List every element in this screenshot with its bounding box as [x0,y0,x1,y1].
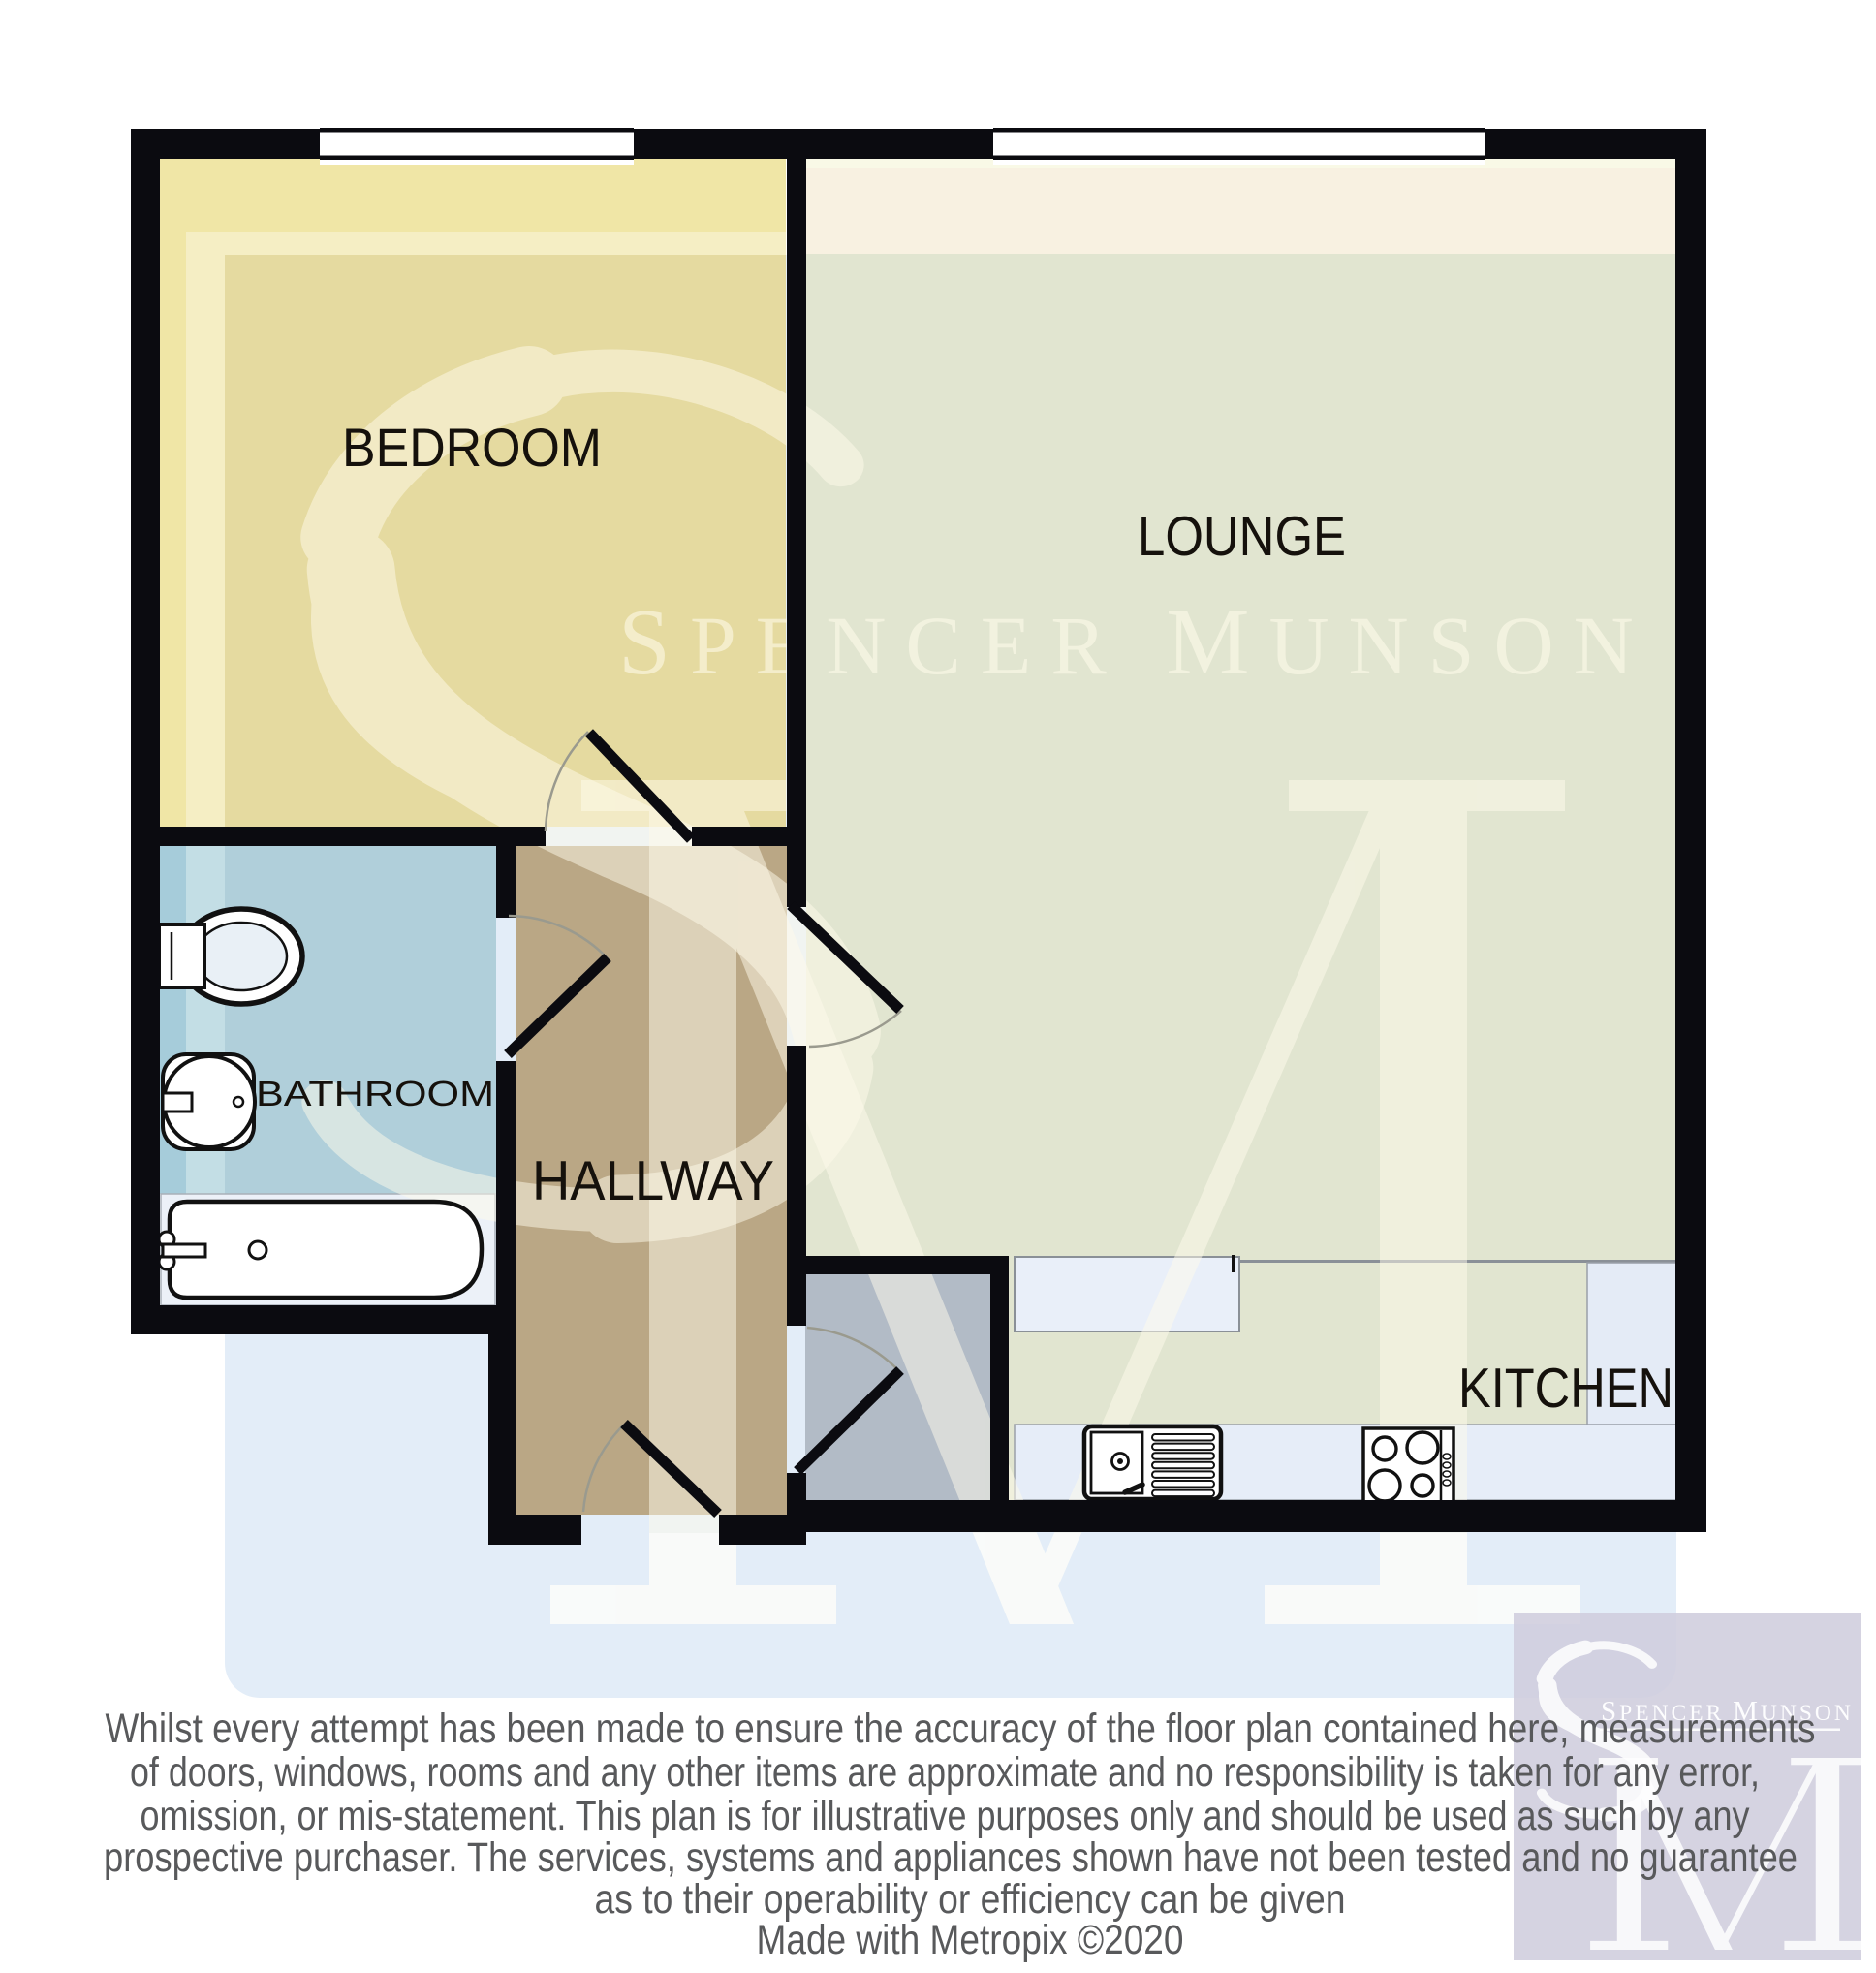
svg-text:HALLWAY: HALLWAY [532,1150,774,1212]
svg-text:prospective purchaser. The ser: prospective purchaser. The services, sys… [104,1834,1798,1881]
svg-text:BATHROOM: BATHROOM [256,1075,494,1113]
svg-text:BEDROOM: BEDROOM [342,418,602,478]
svg-text:KITCHEN: KITCHEN [1458,1358,1673,1420]
svg-text:of doors, windows, rooms and a: of doors, windows, rooms and any other i… [130,1749,1760,1796]
svg-text:Whilst every attempt has been: Whilst every attempt has been made to en… [106,1706,1816,1752]
svg-text:SPENCER MUNSON: SPENCER MUNSON [618,590,1653,694]
svg-text:LOUNGE: LOUNGE [1138,506,1346,568]
svg-text:omission, or mis-statement. Th: omission, or mis-statement. This plan is… [141,1793,1750,1839]
svg-text:as to their operability or eff: as to their operability or efficiency ca… [595,1876,1346,1923]
svg-text:Made with Metropix ©2020: Made with Metropix ©2020 [757,1917,1184,1963]
